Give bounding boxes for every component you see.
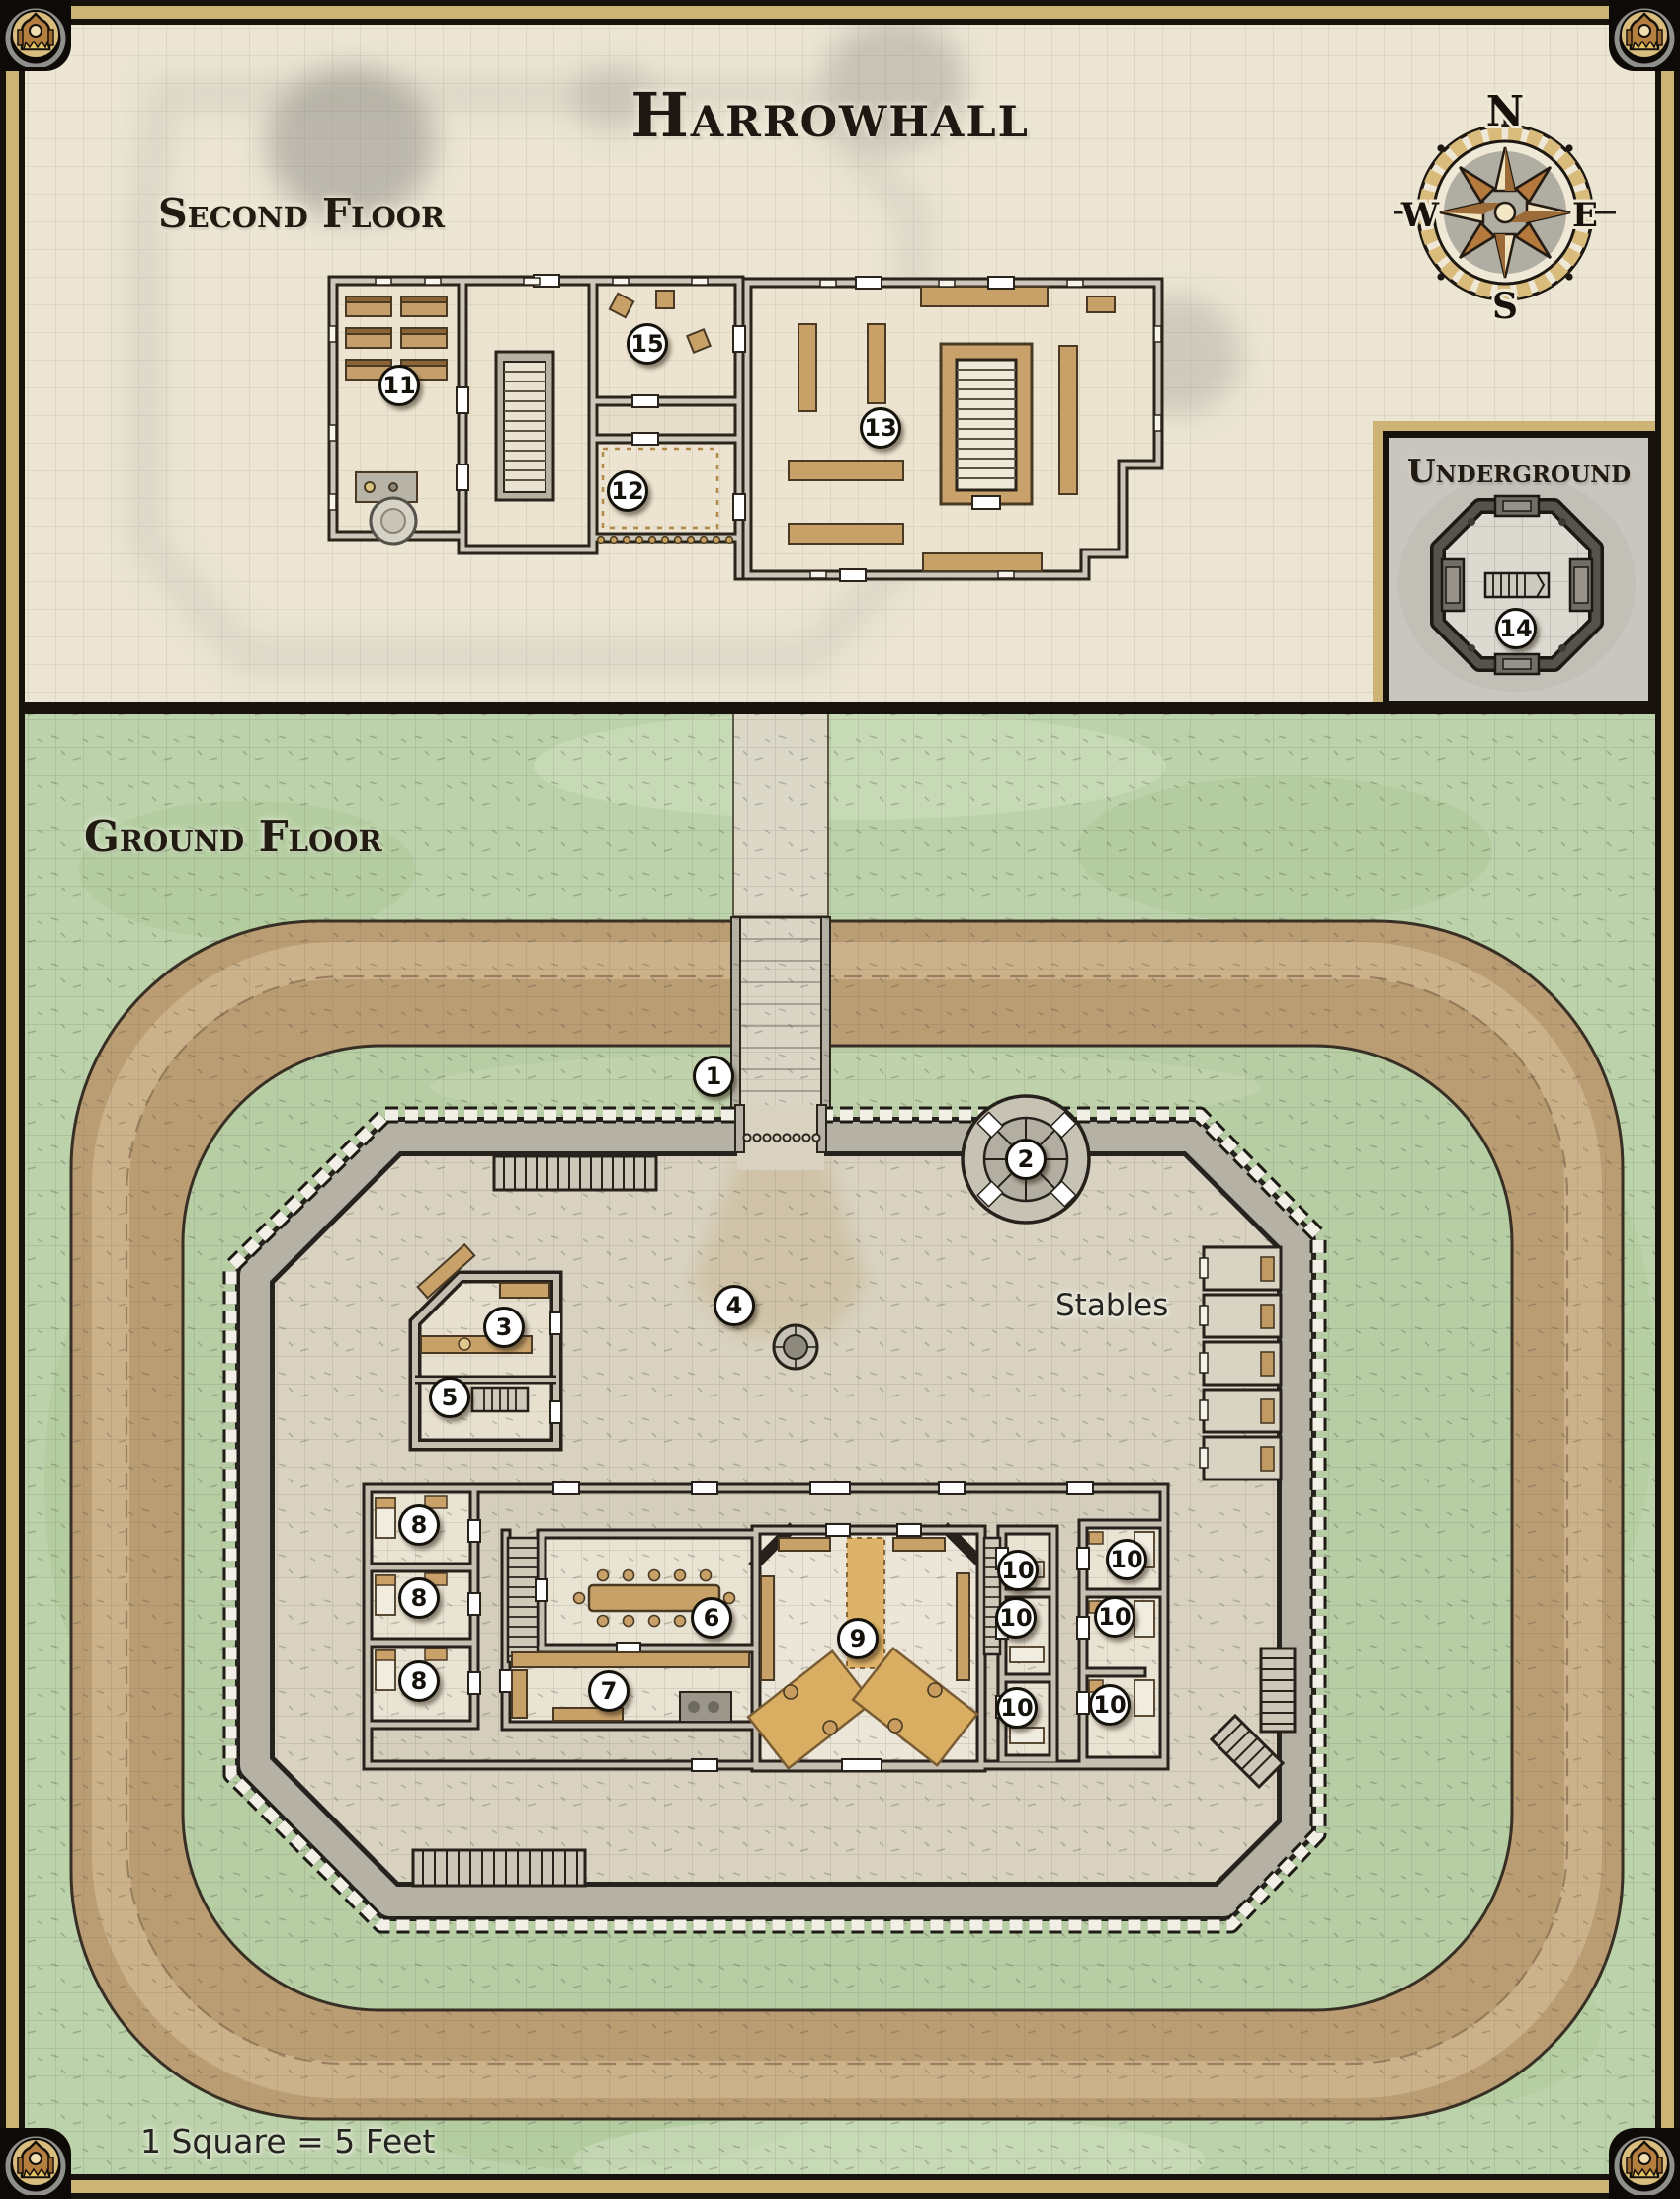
map-marker-10: 10 [995, 1597, 1037, 1639]
map-marker-13: 13 [860, 407, 901, 449]
map-marker-10: 10 [996, 1687, 1038, 1729]
map-marker-8: 8 [398, 1504, 440, 1546]
map-marker-10: 10 [1106, 1539, 1147, 1580]
map-marker-2: 2 [1005, 1139, 1047, 1180]
crest-icon [4, 2132, 67, 2195]
crest-icon [1613, 2132, 1676, 2195]
map-marker-5: 5 [429, 1377, 470, 1418]
crest-icon [4, 4, 67, 67]
map-marker-12: 12 [607, 470, 648, 512]
map-marker-11: 11 [378, 365, 420, 406]
battle-map-page: N S W E [0, 0, 1680, 2199]
map-marker-1: 1 [693, 1056, 734, 1097]
map-marker-8: 8 [398, 1660, 440, 1702]
map-marker-10: 10 [1089, 1684, 1131, 1726]
map-marker-9: 9 [837, 1618, 879, 1659]
corner-ornament-top-right [1609, 0, 1680, 71]
map-marker-14: 14 [1495, 608, 1537, 649]
corner-ornament-top-left [0, 0, 71, 71]
map-marker-3: 3 [483, 1307, 525, 1348]
map-marker-10: 10 [997, 1550, 1039, 1591]
marker-layer: 123456788891010101010101112131415 [0, 0, 1680, 2199]
map-marker-10: 10 [1094, 1596, 1135, 1638]
map-marker-15: 15 [627, 323, 668, 365]
map-marker-4: 4 [714, 1285, 755, 1326]
map-marker-8: 8 [398, 1577, 440, 1619]
corner-ornament-bottom-right [1609, 2128, 1680, 2199]
map-marker-7: 7 [588, 1670, 630, 1712]
map-marker-6: 6 [691, 1597, 732, 1639]
corner-ornament-bottom-left [0, 2128, 71, 2199]
crest-icon [1613, 4, 1676, 67]
